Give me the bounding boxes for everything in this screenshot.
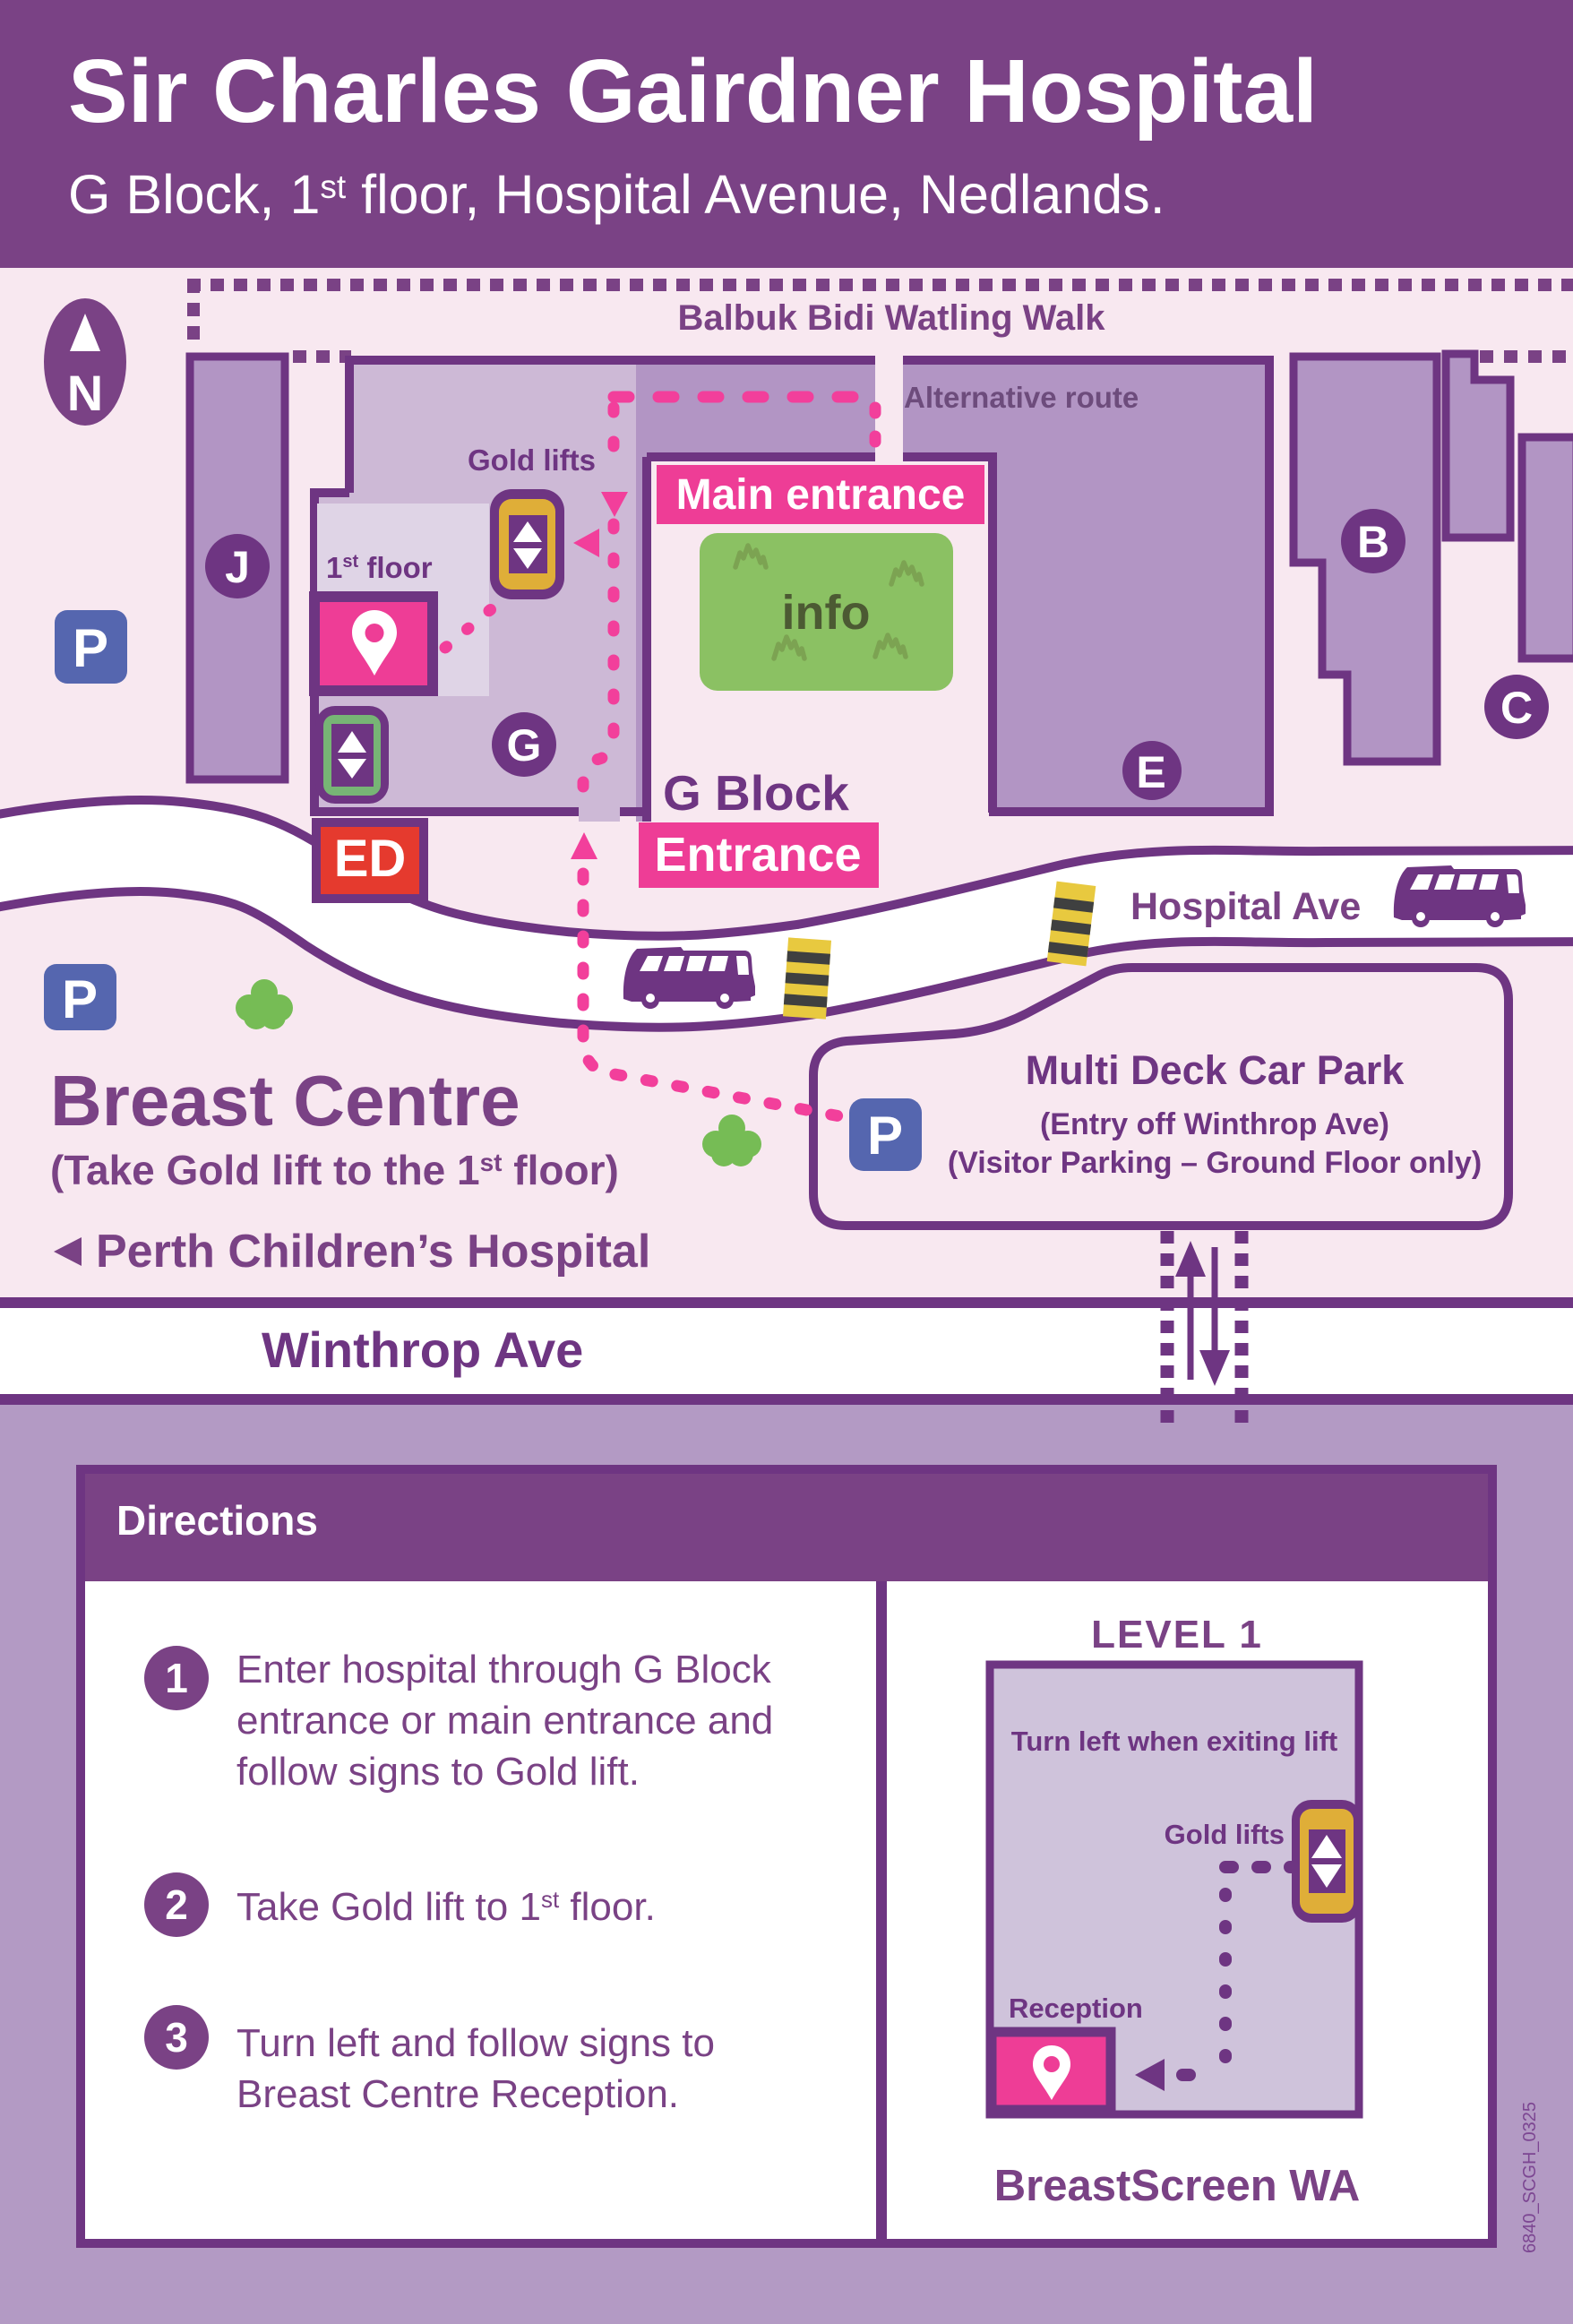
svg-text:N: N: [67, 365, 103, 421]
svg-text:Reception: Reception: [1009, 1993, 1143, 2024]
svg-text:G Block: G Block: [663, 765, 849, 821]
svg-text:B: B: [1357, 517, 1389, 567]
svg-text:E: E: [1136, 747, 1165, 797]
svg-text:C: C: [1500, 683, 1533, 733]
svg-text:Gold lifts: Gold lifts: [468, 443, 596, 477]
svg-text:P: P: [62, 969, 98, 1029]
svg-text:Perth Children’s Hospital: Perth Children’s Hospital: [96, 1226, 650, 1278]
svg-text:info: info: [782, 586, 871, 640]
svg-text:Breast Centre: Breast Centre: [50, 1061, 520, 1140]
svg-text:P: P: [867, 1106, 903, 1166]
svg-text:(Take Gold lift to the 1st flo: (Take Gold lift to the 1st floor): [50, 1147, 619, 1193]
svg-text:J: J: [225, 542, 250, 592]
svg-text:Hospital Ave: Hospital Ave: [1130, 885, 1361, 928]
svg-text:Turn left when exiting lift: Turn left when exiting lift: [1011, 1726, 1338, 1757]
svg-text:Alternative route: Alternative route: [904, 381, 1139, 414]
svg-text:(Visitor Parking – Ground Floo: (Visitor Parking – Ground Floor only): [948, 1146, 1482, 1180]
svg-text:Winthrop Ave: Winthrop Ave: [262, 1321, 583, 1378]
svg-text:Main entrance: Main entrance: [676, 471, 966, 519]
svg-text:Multi Deck Car Park: Multi Deck Car Park: [1026, 1047, 1405, 1093]
svg-text:(Entry off Winthrop Ave): (Entry off Winthrop Ave): [1040, 1107, 1389, 1141]
svg-text:G: G: [507, 720, 542, 770]
svg-text:ED: ED: [334, 830, 407, 888]
svg-text:P: P: [73, 618, 108, 678]
svg-text:Gold lifts: Gold lifts: [1165, 1819, 1285, 1850]
svg-text:1st floor: 1st floor: [326, 551, 433, 584]
svg-text:Entrance: Entrance: [654, 828, 861, 882]
svg-text:Balbuk Bidi Watling Walk: Balbuk Bidi Watling Walk: [677, 298, 1105, 338]
